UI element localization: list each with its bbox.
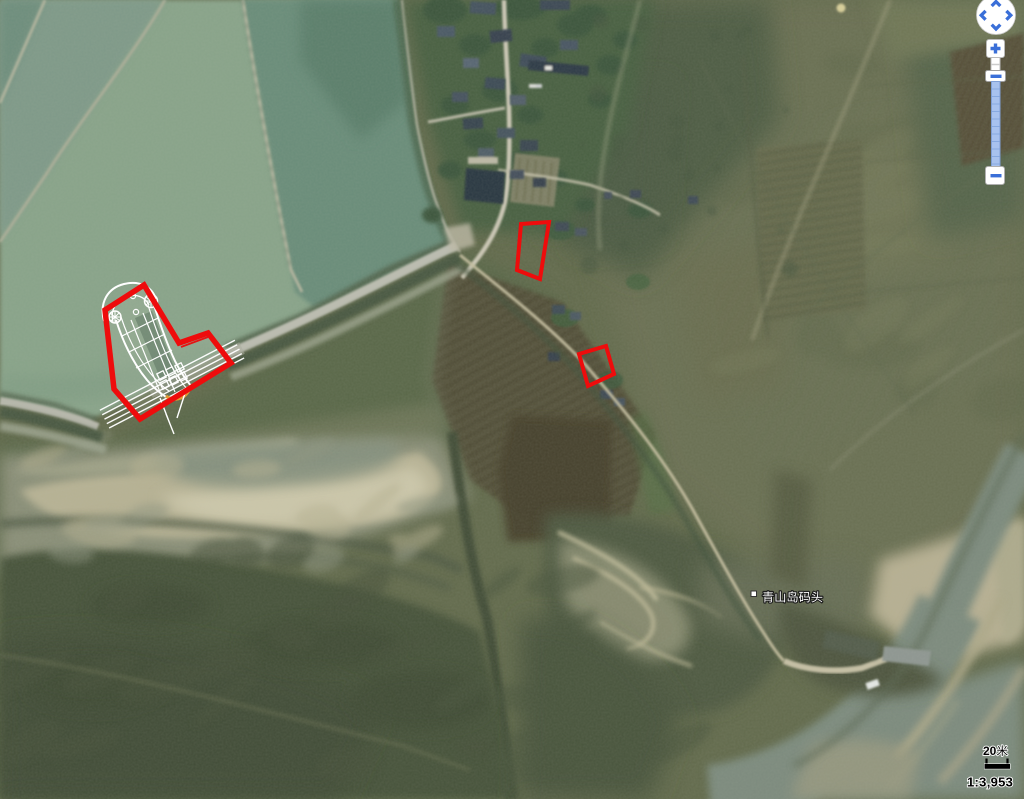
svg-text:20: 20 [983, 744, 997, 758]
svg-text:1:3,953: 1:3,953 [967, 775, 1013, 790]
